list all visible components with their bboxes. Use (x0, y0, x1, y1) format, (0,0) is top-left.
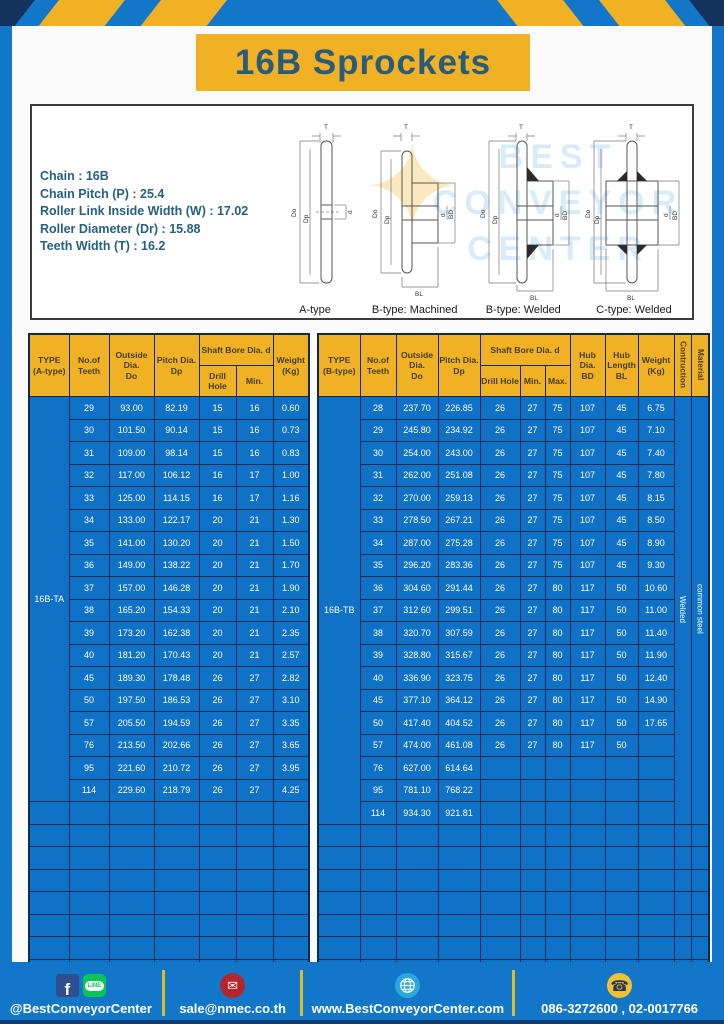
empty-cell (318, 892, 360, 915)
data-cell: 16 (199, 464, 236, 487)
data-cell: 27 (520, 487, 545, 510)
data-cell: 117.00 (109, 464, 154, 487)
empty-cell (520, 847, 545, 870)
data-cell: 76 (69, 734, 109, 757)
data-cell: 98.14 (154, 442, 199, 465)
data-cell: 36 (69, 554, 109, 577)
data-cell: 27 (520, 622, 545, 645)
email-text: sale@nmec.co.th (179, 1001, 286, 1016)
empty-cell (360, 824, 396, 847)
sprocket-diagrams: ✦ BEST CONVEYOR CENTER T Do (270, 106, 692, 318)
data-cell: 3.95 (273, 757, 309, 780)
empty-cell (273, 869, 309, 892)
footer-contact-bar: f LINE @BestConveyorCenter ✉ sale@nmec.c… (0, 962, 724, 1024)
empty-cell (480, 892, 520, 915)
empty-cell (545, 937, 570, 960)
data-cell: 21 (236, 577, 273, 600)
data-cell: 80 (545, 734, 570, 757)
data-cell: 259.13 (438, 487, 480, 510)
empty-cell (199, 824, 236, 847)
data-cell: 50 (605, 689, 638, 712)
empty-cell (360, 892, 396, 915)
empty-row (318, 869, 709, 892)
data-cell: 117 (570, 577, 605, 600)
data-cell: 36 (360, 577, 396, 600)
data-cell: 50 (605, 577, 638, 600)
data-cell: 39 (69, 622, 109, 645)
data-cell: 614.64 (438, 757, 480, 780)
empty-cell (396, 869, 438, 892)
data-cell: 114 (69, 779, 109, 802)
data-cell: 275.28 (438, 532, 480, 555)
data-cell: 57 (69, 712, 109, 735)
col-header-type: TYPE (A-type) (29, 334, 69, 397)
data-cell (638, 779, 674, 802)
empty-cell (360, 869, 396, 892)
data-cell: 26 (480, 667, 520, 690)
empty-cell (480, 937, 520, 960)
svg-text:BL: BL (627, 295, 635, 302)
col-header-min: Min. (520, 366, 545, 397)
data-cell: 117 (570, 667, 605, 690)
empty-cell (396, 914, 438, 937)
data-cell: 27 (520, 712, 545, 735)
svg-text:BL: BL (530, 295, 538, 302)
globe-icon (395, 973, 420, 998)
table-row: 37312.60299.512627801175011.00 (318, 599, 709, 622)
empty-cell (360, 914, 396, 937)
data-cell: 80 (545, 667, 570, 690)
data-cell: 291.44 (438, 577, 480, 600)
empty-cell (674, 869, 691, 892)
data-cell: 26 (480, 419, 520, 442)
data-cell: 26 (480, 622, 520, 645)
hazard-stripe (594, 0, 691, 26)
empty-cell (154, 824, 199, 847)
spec-line-chain: Chain : 16B (40, 168, 270, 186)
data-cell: 50 (605, 622, 638, 645)
data-cell: 8.90 (638, 532, 674, 555)
data-cell: 934.30 (396, 802, 438, 825)
data-cell: 254.00 (396, 442, 438, 465)
data-cell: 157.00 (109, 577, 154, 600)
empty-row (318, 847, 709, 870)
data-cell: 21 (236, 644, 273, 667)
empty-row (29, 824, 309, 847)
data-cell: 243.00 (438, 442, 480, 465)
diagram-label: C-type: Welded (596, 304, 672, 316)
data-cell: 221.60 (109, 757, 154, 780)
svg-text:d: d (554, 213, 561, 217)
data-cell (570, 802, 605, 825)
data-cell: 7.80 (638, 464, 674, 487)
data-cell (480, 757, 520, 780)
table-row: 35141.00130.2020211.50 (29, 532, 309, 555)
table-row: 57205.50194.5926273.35 (29, 712, 309, 735)
col-header-hub-dia: Hub Dia. BD (570, 334, 605, 397)
empty-cell (199, 869, 236, 892)
data-cell: 27 (520, 644, 545, 667)
table-row: 34133.00122.1720211.30 (29, 509, 309, 532)
table-row: 40181.20170.4320212.57 (29, 644, 309, 667)
table-row: 76627.00614.64 (318, 757, 709, 780)
table-b-body: 16B-TB28237.70226.85262775107456.75Welde… (318, 397, 709, 983)
data-cell: 50 (360, 712, 396, 735)
data-cell (480, 802, 520, 825)
empty-cell (691, 824, 709, 847)
hazard-stripe (32, 0, 129, 26)
data-cell: 38 (69, 599, 109, 622)
data-cell: 95 (69, 757, 109, 780)
data-cell (638, 757, 674, 780)
data-cell: 162.38 (154, 622, 199, 645)
spec-line-roller-dia: Roller Diameter (Dr) : 15.88 (40, 221, 270, 239)
empty-cell (605, 847, 638, 870)
empty-cell (570, 847, 605, 870)
empty-cell (605, 914, 638, 937)
data-cell: 27 (520, 509, 545, 532)
data-cell: 21 (236, 509, 273, 532)
data-cell: 270.00 (396, 487, 438, 510)
empty-cell (154, 802, 199, 825)
data-cell: 117 (570, 599, 605, 622)
hazard-stripe (0, 0, 40, 26)
data-cell: 27 (520, 667, 545, 690)
data-cell: 32 (69, 464, 109, 487)
data-cell: 278.50 (396, 509, 438, 532)
svg-text:T: T (324, 124, 328, 131)
data-cell: 26 (199, 779, 236, 802)
data-cell: 125.00 (109, 487, 154, 510)
social-handle-text: @BestConveyorCenter (10, 1001, 152, 1016)
svg-text:T: T (629, 124, 633, 131)
empty-cell (109, 869, 154, 892)
data-cell: 107 (570, 419, 605, 442)
line-icon: LINE (83, 974, 106, 997)
data-cell: 17.65 (638, 712, 674, 735)
data-cell: 45 (605, 554, 638, 577)
table-row: 114229.60218.7926274.25 (29, 779, 309, 802)
empty-row (29, 847, 309, 870)
empty-cell (545, 869, 570, 892)
empty-cell (545, 914, 570, 937)
col-header-drill-hole: Drill Hole (480, 366, 520, 397)
data-cell: 10.60 (638, 577, 674, 600)
data-cell: 27 (520, 419, 545, 442)
chain-specs: Chain : 16B Chain Pitch (P) : 25.4 Rolle… (32, 106, 270, 318)
data-cell: 20 (199, 554, 236, 577)
col-header-pitch-dia: Pitch Dia. Dp (154, 334, 199, 397)
data-cell: 27 (520, 599, 545, 622)
svg-text:d: d (663, 213, 670, 217)
empty-cell (199, 892, 236, 915)
empty-cell (318, 937, 360, 960)
empty-cell (69, 802, 109, 825)
material-cell: common steel (691, 397, 709, 825)
empty-cell (605, 937, 638, 960)
empty-cell (480, 869, 520, 892)
spec-info-box: Chain : 16B Chain Pitch (P) : 25.4 Rolle… (30, 104, 694, 320)
empty-cell (605, 892, 638, 915)
empty-cell (396, 847, 438, 870)
data-cell: 20 (199, 577, 236, 600)
col-header-weight: Weight (Kg) (273, 334, 309, 397)
facebook-icon: f (56, 974, 79, 997)
data-cell: 213.50 (109, 734, 154, 757)
data-cell: 768.22 (438, 779, 480, 802)
empty-cell (236, 802, 273, 825)
data-cell: 26 (480, 712, 520, 735)
data-cell: 781.10 (396, 779, 438, 802)
data-cell: 75 (545, 554, 570, 577)
empty-cell (396, 937, 438, 960)
empty-cell (109, 824, 154, 847)
data-cell: 627.00 (396, 757, 438, 780)
data-cell: 35 (360, 554, 396, 577)
data-cell: 21 (236, 532, 273, 555)
data-cell: 107 (570, 554, 605, 577)
data-cell: 197.50 (109, 689, 154, 712)
construction-cell: Welded (674, 397, 691, 825)
empty-cell (318, 847, 360, 870)
data-cell: 133.00 (109, 509, 154, 532)
data-cell: 0.83 (273, 442, 309, 465)
empty-cell (638, 824, 674, 847)
svg-text:d: d (347, 210, 354, 214)
empty-row (29, 869, 309, 892)
table-row: 95781.10768.22 (318, 779, 709, 802)
data-cell: 178.48 (154, 667, 199, 690)
data-cell: 29 (360, 419, 396, 442)
empty-cell (605, 824, 638, 847)
empty-cell (520, 869, 545, 892)
data-cell: 20 (199, 509, 236, 532)
data-cell: 130.20 (154, 532, 199, 555)
data-cell: 117 (570, 734, 605, 757)
empty-cell (154, 937, 199, 960)
data-cell: 109.00 (109, 442, 154, 465)
data-cell: 45 (605, 464, 638, 487)
empty-cell (69, 892, 109, 915)
data-cell: 8.15 (638, 487, 674, 510)
empty-cell (29, 914, 69, 937)
data-cell: 107 (570, 464, 605, 487)
col-header-construction: Contruction (674, 334, 691, 397)
empty-cell (480, 847, 520, 870)
table-row: 36149.00138.2220211.70 (29, 554, 309, 577)
data-cell: 3.65 (273, 734, 309, 757)
data-cell (570, 757, 605, 780)
data-cell: 1.70 (273, 554, 309, 577)
data-cell: 1.30 (273, 509, 309, 532)
a-type-drawing-icon: T Do Dp d (272, 121, 358, 303)
empty-cell (236, 892, 273, 915)
data-cell: 31 (360, 464, 396, 487)
data-cell (638, 734, 674, 757)
col-header-min: Min. (236, 366, 273, 397)
table-row: 76213.50202.6626273.65 (29, 734, 309, 757)
empty-cell (674, 824, 691, 847)
data-cell: 38 (360, 622, 396, 645)
empty-cell (109, 802, 154, 825)
table-b-header: TYPE (B-type) No.of Teeth Outside Dia. D… (318, 334, 709, 397)
empty-cell (273, 847, 309, 870)
data-cell: 205.50 (109, 712, 154, 735)
svg-text:Dp: Dp (303, 214, 310, 223)
data-cell: 30 (69, 419, 109, 442)
empty-cell (109, 914, 154, 937)
empty-cell (520, 824, 545, 847)
data-cell: 26 (199, 667, 236, 690)
data-cell: 39 (360, 644, 396, 667)
table-row: 57474.00461.0826278011750 (318, 734, 709, 757)
empty-cell (154, 892, 199, 915)
empty-row (29, 892, 309, 915)
hazard-stripe (684, 0, 724, 26)
empty-cell (360, 847, 396, 870)
data-cell: 45 (605, 442, 638, 465)
empty-row (318, 892, 709, 915)
empty-cell (638, 914, 674, 937)
empty-cell (605, 869, 638, 892)
svg-text:Do: Do (291, 208, 298, 217)
data-cell: 45 (605, 509, 638, 532)
sprocket-table-b: TYPE (B-type) No.of Teeth Outside Dia. D… (317, 333, 710, 983)
diagram-a-type: T Do Dp d A-type (272, 110, 358, 316)
data-cell: 117 (570, 622, 605, 645)
empty-cell (570, 914, 605, 937)
data-cell: 106.12 (154, 464, 199, 487)
data-cell: 50 (605, 734, 638, 757)
data-cell: 114.15 (154, 487, 199, 510)
data-cell: 461.08 (438, 734, 480, 757)
data-cell: 50 (605, 644, 638, 667)
table-row: 31109.0098.1415160.83 (29, 442, 309, 465)
empty-cell (545, 847, 570, 870)
table-row: 38320.70307.592627801175011.40 (318, 622, 709, 645)
phone-icon: ☎ (607, 973, 632, 998)
empty-cell (273, 824, 309, 847)
data-cell: 50 (69, 689, 109, 712)
empty-cell (438, 847, 480, 870)
data-cell: 93.00 (109, 397, 154, 420)
data-cell: 296.20 (396, 554, 438, 577)
title-banner: 16B Sprockets (196, 34, 530, 91)
data-cell: 45 (69, 667, 109, 690)
empty-cell (273, 937, 309, 960)
empty-cell (520, 914, 545, 937)
data-cell: 17 (236, 487, 273, 510)
table-row: 37157.00146.2820211.90 (29, 577, 309, 600)
empty-cell (480, 824, 520, 847)
spec-line-teeth-width: Teeth Width (T) : 16.2 (40, 238, 270, 256)
empty-cell (438, 824, 480, 847)
data-cell: 26 (199, 712, 236, 735)
empty-cell (29, 892, 69, 915)
empty-cell (236, 914, 273, 937)
table-row: 95221.60210.7226273.95 (29, 757, 309, 780)
empty-cell (520, 937, 545, 960)
empty-cell (154, 869, 199, 892)
diagram-b-type-machined: T Do Dp d BD BL (365, 110, 465, 316)
data-cell: 50 (605, 712, 638, 735)
data-cell: 146.28 (154, 577, 199, 600)
empty-row (318, 914, 709, 937)
empty-cell (69, 824, 109, 847)
phone-numbers-text: 086-3272600 , 02-0017766 (541, 1001, 698, 1016)
data-cell: 40 (360, 667, 396, 690)
data-cell: 80 (545, 644, 570, 667)
type-cell: 16B-TA (29, 397, 69, 802)
empty-cell (691, 937, 709, 960)
data-cell: 173.20 (109, 622, 154, 645)
empty-cell (638, 869, 674, 892)
footer-email-section: ✉ sale@nmec.co.th (165, 962, 301, 1024)
empty-cell (438, 914, 480, 937)
data-cell: 26 (480, 577, 520, 600)
data-cell: 27 (520, 577, 545, 600)
data-cell: 12.40 (638, 667, 674, 690)
col-header-outside-dia: Outside Dia. Do (396, 334, 438, 397)
data-cell: 26 (480, 532, 520, 555)
data-cell: 75 (545, 487, 570, 510)
hazard-stripe (134, 0, 231, 26)
data-cell: 226.85 (438, 397, 480, 420)
empty-cell (545, 824, 570, 847)
empty-cell (318, 869, 360, 892)
col-header-teeth: No.of Teeth (360, 334, 396, 397)
data-cell: 76 (360, 757, 396, 780)
data-cell: 1.00 (273, 464, 309, 487)
table-row: 32270.00259.13262775107458.15 (318, 487, 709, 510)
empty-cell (570, 824, 605, 847)
col-header-weight: Weight (Kg) (638, 334, 674, 397)
table-row: 40336.90323.752627801175012.40 (318, 667, 709, 690)
page-title: 16B Sprockets (235, 43, 491, 83)
catalog-page: 16B Sprockets Chain : 16B Chain Pitch (P… (0, 0, 724, 1024)
data-cell: 287.00 (396, 532, 438, 555)
data-cell: 95 (360, 779, 396, 802)
svg-text:Do: Do (372, 209, 379, 218)
col-header-type: TYPE (B-type) (318, 334, 360, 397)
data-cell: 141.00 (109, 532, 154, 555)
b-type-machined-drawing-icon: T Do Dp d BD BL (365, 121, 465, 303)
empty-row (29, 914, 309, 937)
empty-row (29, 802, 309, 825)
data-cell: 11.40 (638, 622, 674, 645)
table-row: 35296.20283.36262775107459.30 (318, 554, 709, 577)
empty-cell (199, 937, 236, 960)
data-cell (545, 779, 570, 802)
empty-cell (236, 937, 273, 960)
empty-cell (273, 892, 309, 915)
data-cell: 154.33 (154, 599, 199, 622)
data-cell: 328.80 (396, 644, 438, 667)
data-cell: 80 (545, 577, 570, 600)
table-row: 39173.20162.3820212.35 (29, 622, 309, 645)
empty-cell (236, 869, 273, 892)
data-cell: 32 (360, 487, 396, 510)
data-cell: 26 (480, 644, 520, 667)
c-type-welded-drawing-icon: T Do Dp d (582, 121, 686, 303)
data-cell: 404.52 (438, 712, 480, 735)
data-cell: 26 (199, 689, 236, 712)
data-cell (570, 779, 605, 802)
data-cell (545, 802, 570, 825)
data-cell: 2.35 (273, 622, 309, 645)
data-cell: 27 (520, 397, 545, 420)
empty-cell (69, 914, 109, 937)
